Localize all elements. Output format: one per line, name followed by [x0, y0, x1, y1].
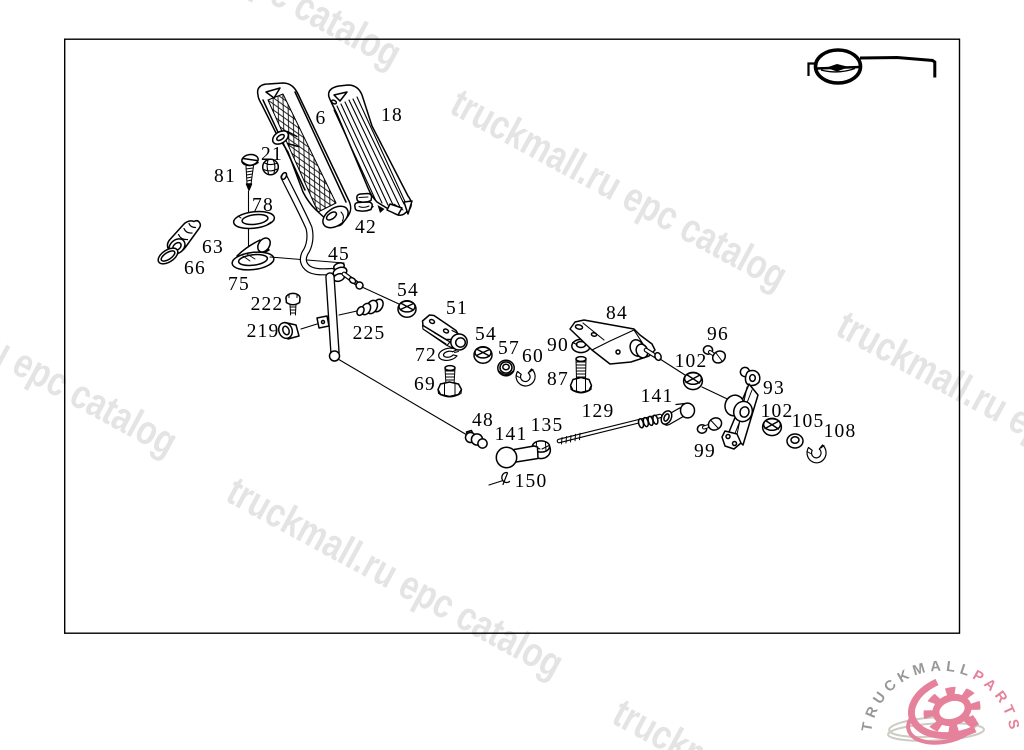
- svg-text:57: 57: [498, 338, 520, 359]
- svg-text:54: 54: [475, 324, 497, 345]
- svg-text:66: 66: [184, 258, 206, 279]
- svg-text:21: 21: [261, 144, 283, 165]
- svg-text:108: 108: [824, 421, 857, 442]
- svg-text:225: 225: [353, 323, 386, 344]
- svg-text:102: 102: [761, 401, 794, 422]
- svg-text:75: 75: [228, 274, 250, 295]
- svg-text:222: 222: [251, 294, 284, 315]
- svg-text:6: 6: [316, 108, 327, 129]
- svg-text:96: 96: [707, 324, 729, 345]
- svg-text:105: 105: [792, 411, 825, 432]
- svg-text:93: 93: [763, 378, 785, 399]
- svg-text:87: 87: [547, 369, 569, 390]
- svg-text:60: 60: [522, 346, 544, 367]
- svg-text:72: 72: [415, 345, 437, 366]
- svg-text:135: 135: [531, 415, 564, 436]
- svg-text:219: 219: [247, 321, 280, 342]
- svg-text:truckmall.ru epc catalog: truckmall.ru epc catalog: [444, 79, 796, 298]
- svg-text:48: 48: [472, 410, 494, 431]
- svg-text:78: 78: [252, 195, 274, 216]
- svg-text:truckmall.ru epc catalog: truckmall.ru epc catalog: [830, 301, 1024, 520]
- svg-text:141: 141: [641, 386, 674, 407]
- svg-text:truckmall.ru epc catalog: truckmall.ru epc catalog: [0, 245, 185, 464]
- svg-text:18: 18: [381, 105, 403, 126]
- svg-text:63: 63: [202, 237, 224, 258]
- svg-text:51: 51: [446, 298, 468, 319]
- svg-text:102: 102: [675, 351, 708, 372]
- svg-text:99: 99: [694, 441, 716, 462]
- svg-text:81: 81: [214, 166, 236, 187]
- svg-text:84: 84: [606, 303, 628, 324]
- svg-text:42: 42: [355, 217, 377, 238]
- svg-text:141: 141: [495, 424, 528, 445]
- svg-text:150: 150: [515, 471, 548, 492]
- svg-text:45: 45: [328, 244, 350, 265]
- svg-text:truckmall.ru epc catalog: truckmall.ru epc catalog: [220, 467, 572, 686]
- svg-text:129: 129: [582, 401, 615, 422]
- svg-text:truckmall.ru epc catalog: truckmall.ru epc catalog: [58, 0, 410, 77]
- svg-text:90: 90: [547, 335, 569, 356]
- svg-text:54: 54: [397, 280, 419, 301]
- svg-text:69: 69: [414, 374, 436, 395]
